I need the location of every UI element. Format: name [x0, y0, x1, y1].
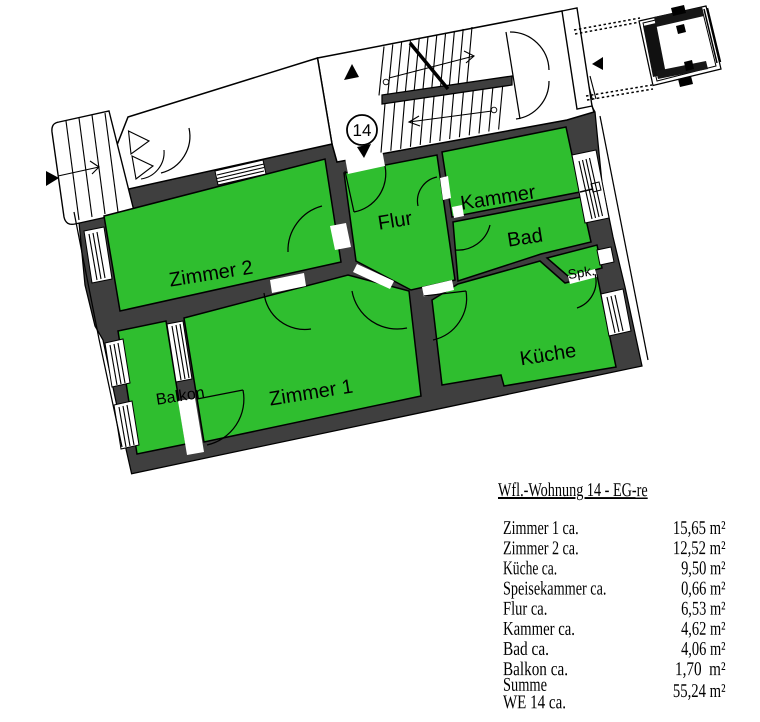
svg-text:Zimmer 1 ca.: Zimmer 1 ca. — [503, 518, 579, 539]
svg-text:Flur ca.: Flur ca. — [503, 599, 547, 620]
svg-text:Bad ca.: Bad ca. — [503, 639, 549, 660]
svg-text:4,06 m²: 4,06 m² — [681, 639, 726, 660]
svg-text:Wfl.-Wohnung 14 - EG-re: Wfl.-Wohnung 14 - EG-re — [498, 480, 648, 501]
svg-text:0,66 m²: 0,66 m² — [681, 578, 726, 599]
svg-text:14: 14 — [353, 121, 372, 140]
svg-text:Kammer ca.: Kammer ca. — [503, 619, 575, 640]
svg-text:15,65 m²: 15,65 m² — [673, 518, 726, 539]
svg-text:1,70 m²: 1,70 m² — [675, 659, 726, 680]
svg-text:9,50 m²: 9,50 m² — [681, 558, 726, 579]
svg-text:12,52 m²: 12,52 m² — [673, 538, 726, 559]
svg-text:55,24 m²: 55,24 m² — [673, 681, 726, 702]
svg-text:Zimmer 2 ca.: Zimmer 2 ca. — [503, 538, 579, 559]
svg-text:6,53 m²: 6,53 m² — [681, 599, 726, 620]
svg-text:4,62 m²: 4,62 m² — [681, 619, 726, 640]
svg-text:WE 14 ca.: WE 14 ca. — [503, 692, 566, 713]
svg-text:Speisekammer ca.: Speisekammer ca. — [503, 579, 607, 600]
svg-text:Küche ca.: Küche ca. — [503, 558, 557, 579]
